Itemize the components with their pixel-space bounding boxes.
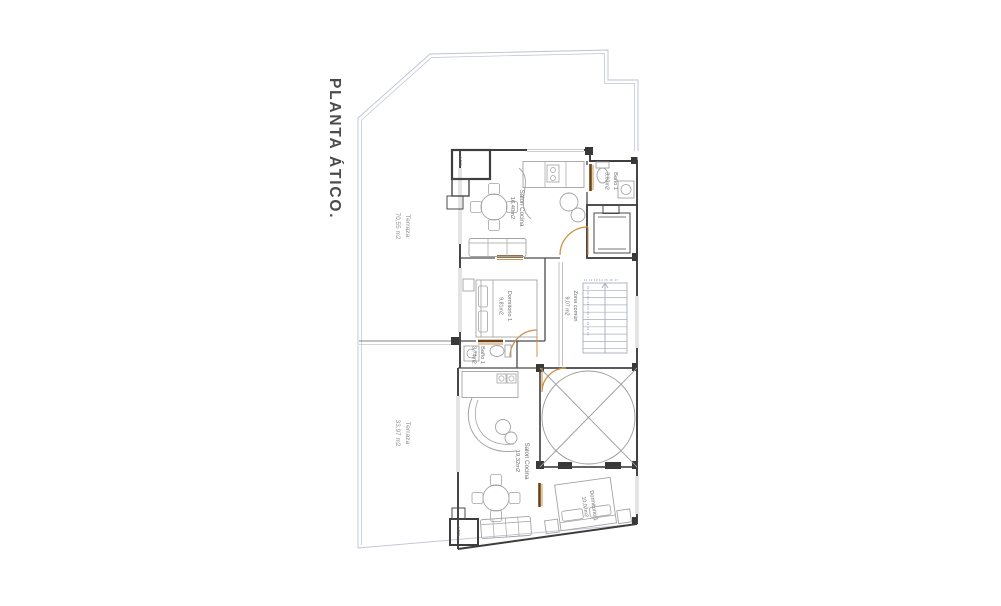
svg-text:Dormitorio 1: Dormitorio 1 xyxy=(506,291,512,321)
svg-text:33,97 m2: 33,97 m2 xyxy=(394,420,401,447)
label-zona-comun: Zona común 9,07 m2 xyxy=(564,290,579,321)
sofa-upper xyxy=(469,239,526,257)
label-terraza-lower: Terraza 33,97 m2 xyxy=(394,420,411,447)
acs-closet-upper xyxy=(447,150,490,209)
svg-text:16,40m2: 16,40m2 xyxy=(509,197,515,220)
svg-text:Baño 1: Baño 1 xyxy=(612,172,618,190)
svg-text:9,81m2: 9,81m2 xyxy=(498,297,504,315)
stair-numbers-down: 01 02 03 04 05 06 07 08 09 10 xyxy=(586,286,590,336)
label-salon-upper: Salon Cocina 16,40m2 xyxy=(509,190,525,227)
svg-text:Salon Cocina: Salon Cocina xyxy=(523,443,530,480)
svg-text:Zona común: Zona común xyxy=(572,290,578,321)
dining-table-lower xyxy=(472,475,520,522)
svg-text:10,02m2: 10,02m2 xyxy=(580,496,589,517)
floorplan-page: 01 02 03 04 05 06 07 08 09 10 11 12 13 1… xyxy=(0,0,1001,606)
svg-text:19,32m2: 19,32m2 xyxy=(514,450,520,473)
kitchen-upper xyxy=(519,162,585,223)
label-salon-lower: Salon Cocina 19,32m2 xyxy=(514,443,530,480)
label-terraza-upper: Terraza 70,55 m2 xyxy=(394,213,411,240)
lightwell xyxy=(540,368,637,467)
label-acs-lower: ACS xyxy=(456,526,461,536)
label-acs-upper: ACS xyxy=(458,156,463,166)
label-dormitorio-lower: Dormitorio 1 10,02m2 xyxy=(579,490,598,522)
svg-text:9,07 m2: 9,07 m2 xyxy=(564,296,570,315)
floorplan-drawing: 01 02 03 04 05 06 07 08 09 10 11 12 13 1… xyxy=(0,0,1001,606)
label-dormitorio-upper: Dormitorio 1 9,81m2 xyxy=(498,291,513,321)
svg-text:Terraza: Terraza xyxy=(404,215,411,238)
plan-title: PLANTA ÁTICO. xyxy=(326,78,343,219)
svg-text:Terraza: Terraza xyxy=(404,422,411,445)
terrace-divider xyxy=(359,337,459,345)
svg-text:3,74m2: 3,74m2 xyxy=(471,346,477,364)
svg-text:70,55 m2: 70,55 m2 xyxy=(394,213,401,240)
stairs: 01 02 03 04 05 06 07 08 09 10 11 12 13 1… xyxy=(583,278,627,353)
label-bano-top: Baño 1 3,03m2 xyxy=(604,172,619,190)
doors xyxy=(478,164,593,507)
stair-numbers-up: 11 12 13 14 15 16 17 xyxy=(584,278,618,282)
svg-text:Baño 1: Baño 1 xyxy=(479,346,485,364)
elevator xyxy=(587,205,637,258)
svg-text:3,03m2: 3,03m2 xyxy=(604,172,610,190)
kitchen-lower xyxy=(462,372,518,452)
svg-text:Salon Cocina: Salon Cocina xyxy=(518,190,525,227)
